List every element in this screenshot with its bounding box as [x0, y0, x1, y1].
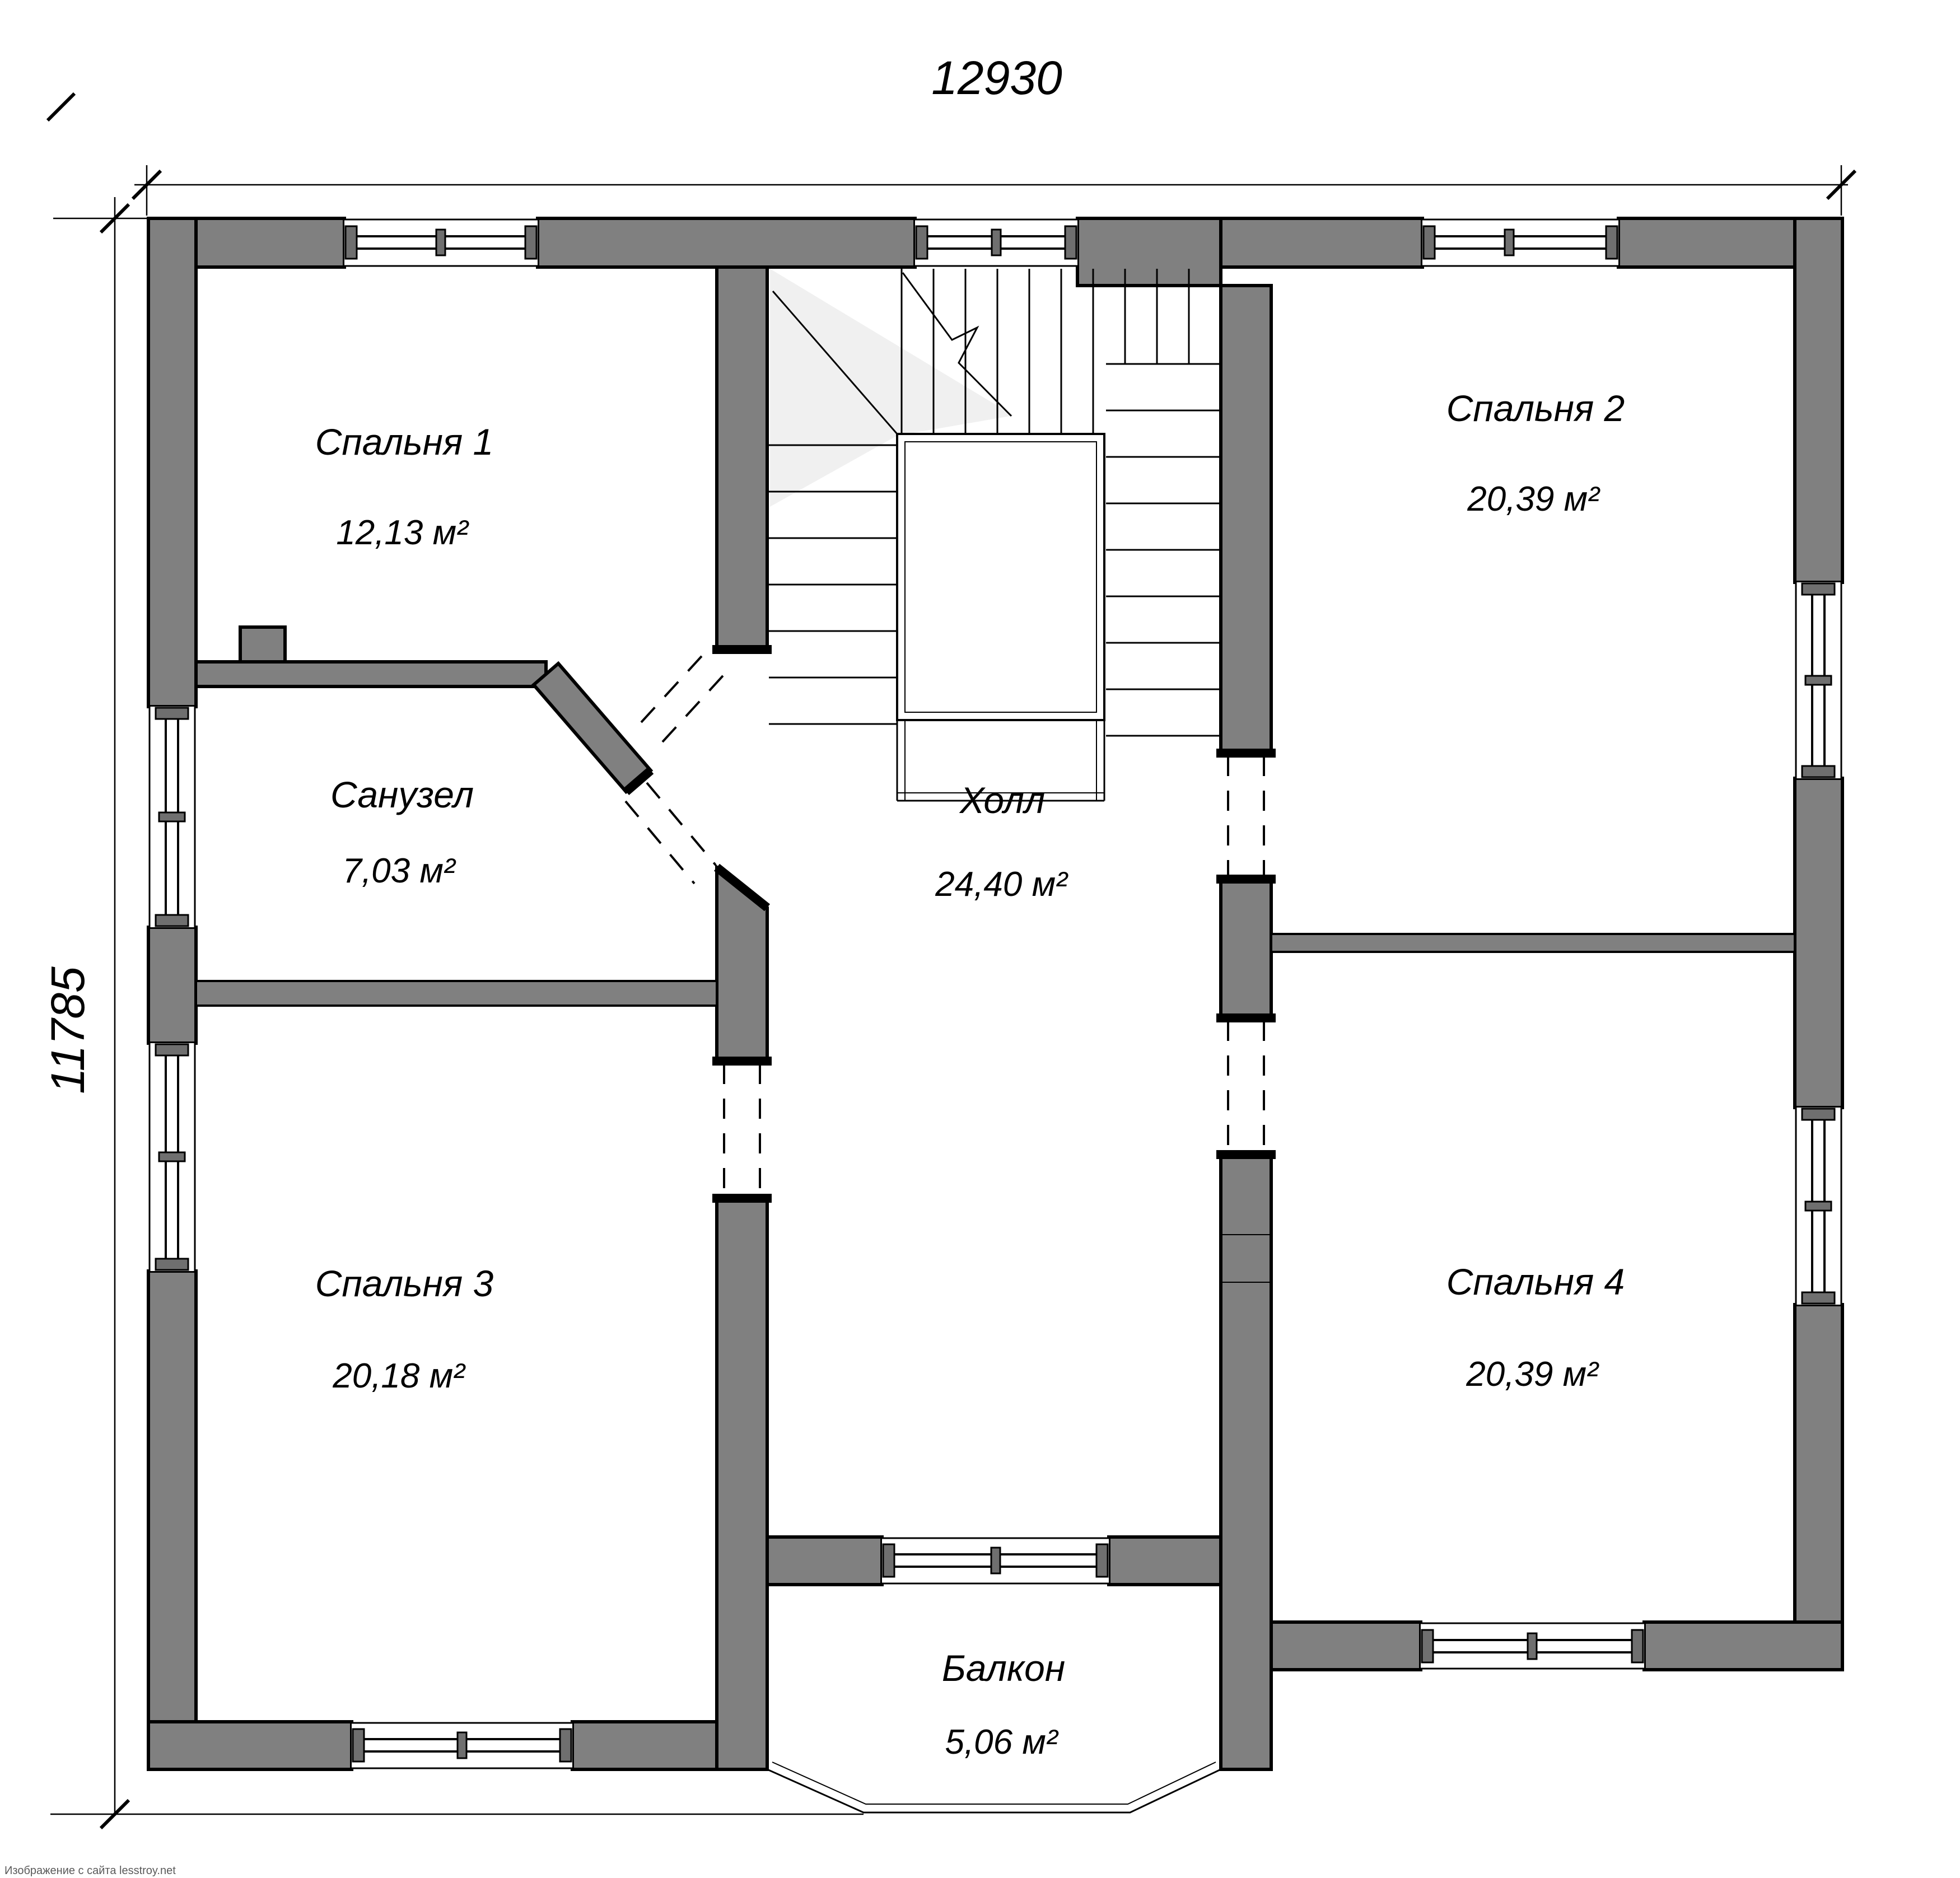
wall-balcony-pier-left: [767, 1537, 882, 1585]
room-area-bedroom1: 12,13 м²: [336, 513, 469, 552]
wall-bedroom3-hall-lower: [717, 1198, 767, 1769]
door-bathroom-dash: [626, 801, 694, 884]
wall-right-3: [1795, 1305, 1842, 1670]
balcony-railing: [767, 1762, 1221, 1812]
wall-top-2: [538, 218, 915, 267]
chimney-stub: [240, 627, 285, 662]
wall-balcony-pier-right: [1109, 1537, 1221, 1585]
window-top-bedroom1: [344, 219, 538, 266]
window-top-stairs: [915, 219, 1077, 266]
wall-bathroom-diagonal: [534, 664, 651, 792]
wall-left-3: [148, 1271, 196, 1769]
wall-hall-bedroom4: [1221, 1155, 1271, 1769]
wall-bedroom2-bedroom4: [1271, 934, 1795, 952]
wall-right-2: [1795, 778, 1842, 1108]
room-area-hall: 24,40 м²: [935, 865, 1068, 904]
room-area-balcony: 5,06 м²: [945, 1723, 1058, 1762]
room-name-bedroom2: Спальня 2: [1446, 387, 1625, 429]
dimension-top: 12930: [48, 52, 1855, 216]
room-area-bedroom4: 20,39 м²: [1466, 1355, 1599, 1394]
wall-left-1: [148, 218, 196, 707]
room-area-bedroom3: 20,18 м²: [332, 1357, 466, 1395]
wall-left-2: [148, 927, 196, 1043]
window-right-bedroom2: [1796, 582, 1841, 778]
wall-bathroom-top: [196, 662, 546, 686]
window-right-bedroom4: [1796, 1108, 1841, 1305]
room-name-bedroom4: Спальня 4: [1446, 1261, 1625, 1302]
window-bottom-bedroom3: [352, 1723, 572, 1768]
wall-top-3: [1077, 218, 1221, 286]
window-bottom-bedroom4: [1421, 1623, 1644, 1669]
dimension-width-label: 12930: [931, 52, 1062, 104]
wall-bottom-right-2: [1644, 1622, 1842, 1670]
wall-bathroom-bedroom3: [196, 981, 717, 1006]
room-name-bedroom3: Спальня 3: [315, 1263, 494, 1304]
wall-top-4: [1221, 218, 1422, 267]
floor-plan-svg: 12930 11785 Спальня 1 12,13 м² Спальня 2…: [0, 0, 1960, 1878]
room-name-balcony: Балкон: [942, 1647, 1065, 1689]
room-area-bedroom2: 20,39 м²: [1467, 480, 1600, 518]
stairs: [769, 269, 1219, 801]
wall-hall-bedroom2: [1221, 286, 1271, 753]
room-name-bathroom: Санузел: [330, 774, 474, 815]
window-top-bedroom2: [1422, 219, 1618, 266]
dimension-height-label: 11785: [41, 966, 94, 1094]
wall-right-1: [1795, 218, 1842, 582]
door-bathroom-dash: [647, 783, 716, 865]
window-left-bedroom3: [150, 1043, 195, 1271]
wall-hall-pier: [1221, 879, 1271, 1018]
wall-bedroom1-stairs: [717, 267, 767, 650]
stairwell-void: [897, 434, 1104, 720]
window-left-bathroom: [150, 707, 195, 927]
wall-bottom-right-1: [1271, 1622, 1421, 1670]
door-bedroom1-dash: [641, 651, 707, 722]
door-bedroom1-dash: [662, 670, 728, 742]
room-name-hall: Холл: [959, 779, 1045, 821]
room-name-bedroom1: Спальня 1: [315, 421, 494, 463]
wall-bottom-left-1: [148, 1722, 352, 1769]
room-area-bathroom: 7,03 м²: [342, 852, 456, 890]
window-balcony: [882, 1538, 1109, 1583]
watermark: Изображение с сайта lesstroy.net: [4, 1865, 176, 1877]
